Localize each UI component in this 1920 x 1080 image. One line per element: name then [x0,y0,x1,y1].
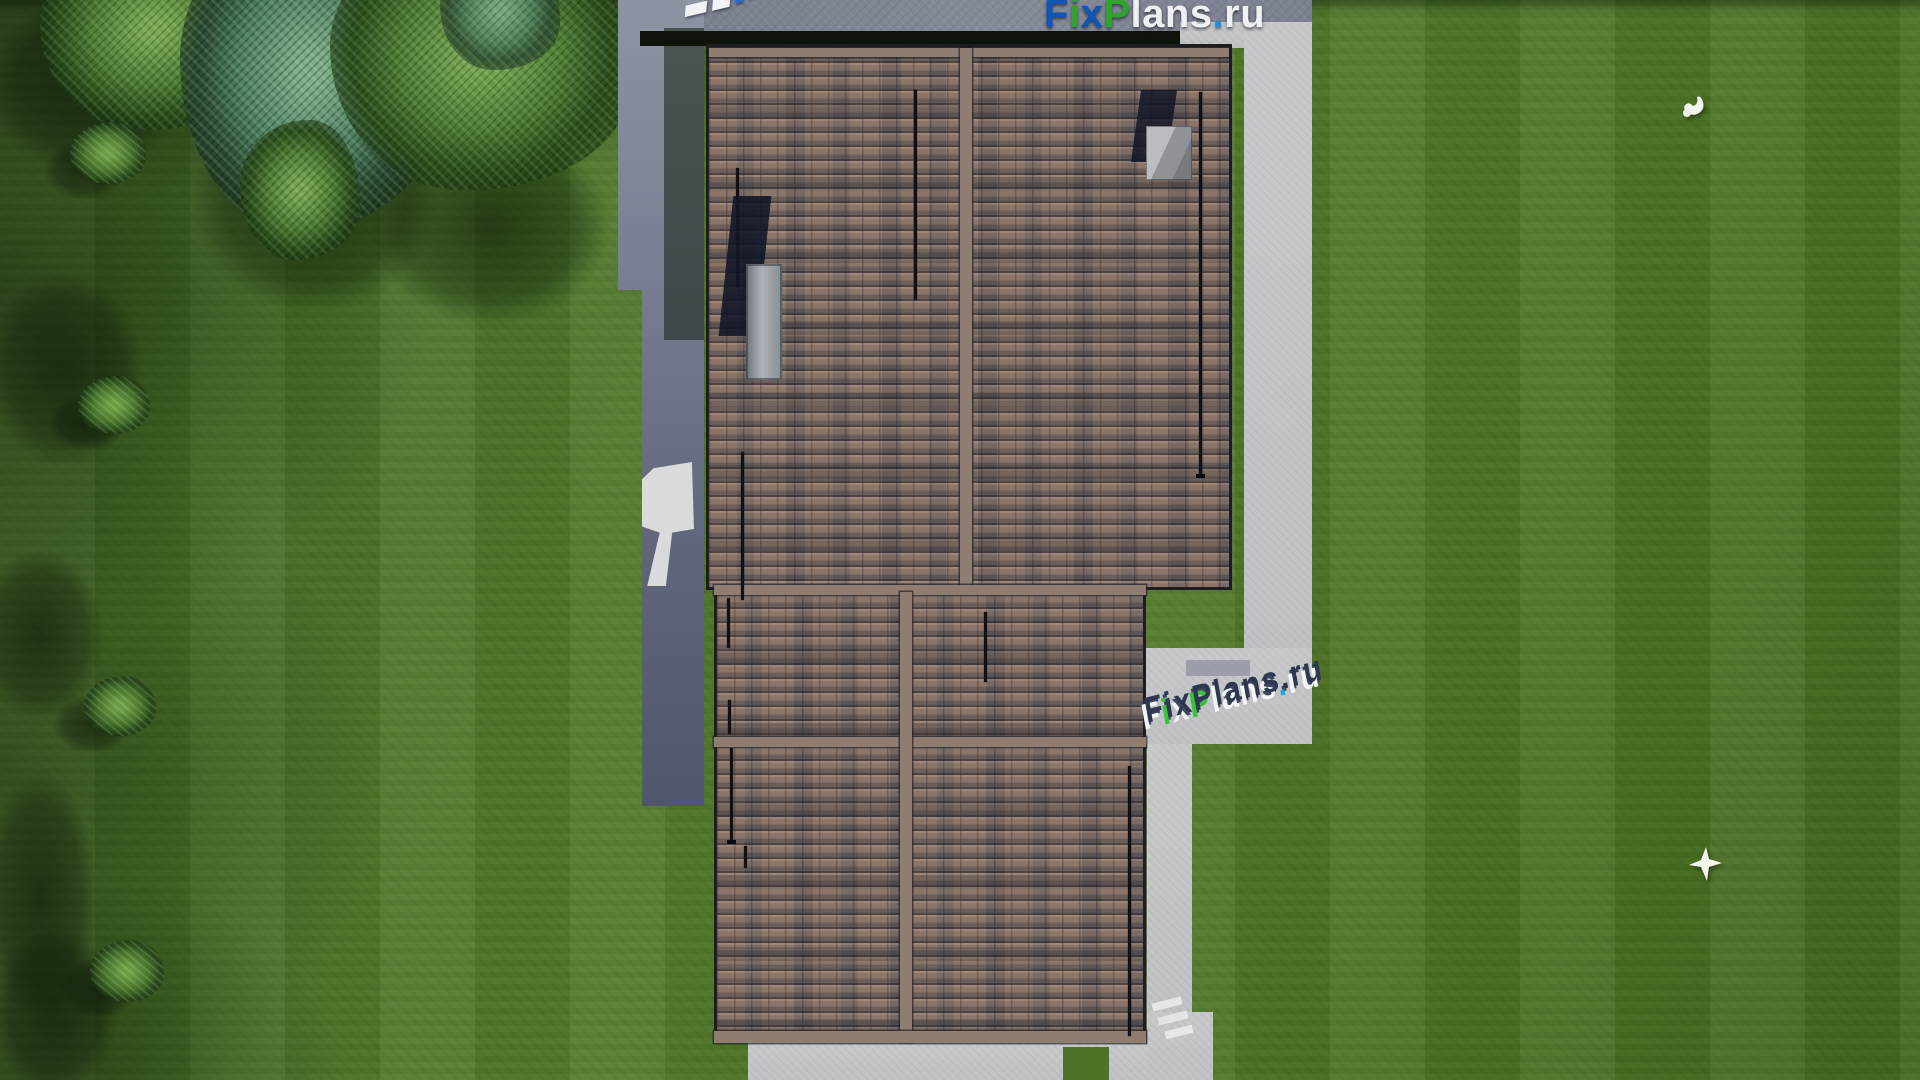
watermark-logo-top: FixPlans.ru [1044,0,1265,34]
roof-ridge-seam-vertical [960,48,972,588]
bush [90,940,164,1002]
roof-bottom-right-section [906,742,1146,1043]
roof-seam-horizontal-lower [714,737,1146,747]
bird-icon [1686,846,1724,882]
roof-gutter-bar [728,700,731,734]
wall-shade-overlay [664,28,704,340]
roof-gutter-bar [727,598,730,648]
roof-gutter-bar [1128,766,1131,1036]
tree-canopy [240,120,360,260]
logo-part: lans [1131,0,1213,36]
logo-part: ru [1224,0,1265,36]
logo-part: P [1103,0,1130,36]
roof-seam-horizontal-upper [714,585,1146,595]
roof-vent [1146,126,1192,180]
roof-mid-left-section [714,590,906,742]
roof-bottom-left-section [714,742,906,1043]
roof-gutter-bar [741,452,744,600]
letter-top-blue [735,0,744,3]
roof-mid-right-wing [906,590,1146,742]
path-right [1244,24,1312,650]
logo-part: F [1044,0,1069,36]
logo-part: i [1069,0,1081,36]
roof-seam-vertical-lower [900,592,912,1042]
gutter-bar-cap [727,840,736,844]
roof-gutter-bar [744,846,747,868]
logo-part: . [1213,0,1225,36]
roof-gutter-bar [1199,92,1202,477]
bush [78,376,150,434]
bush [84,676,156,736]
logo-part: x [1081,0,1104,36]
aerial-render-scene: FixPlans.ru FixPlans.ru [0,0,1920,1080]
bush [70,122,146,184]
roof-gutter-bar [914,90,917,300]
roof-gutter-bar [984,612,987,682]
apron-grass-notch [1063,1047,1109,1080]
chimney [746,264,782,380]
gutter-bar-cap [1196,474,1205,478]
roof-gutter-bar [730,748,733,843]
path-east-strip [1147,744,1192,1012]
bird-icon [1676,84,1710,120]
path-east-step [1147,1012,1213,1080]
roof-bottom-fascia [714,1031,1146,1043]
